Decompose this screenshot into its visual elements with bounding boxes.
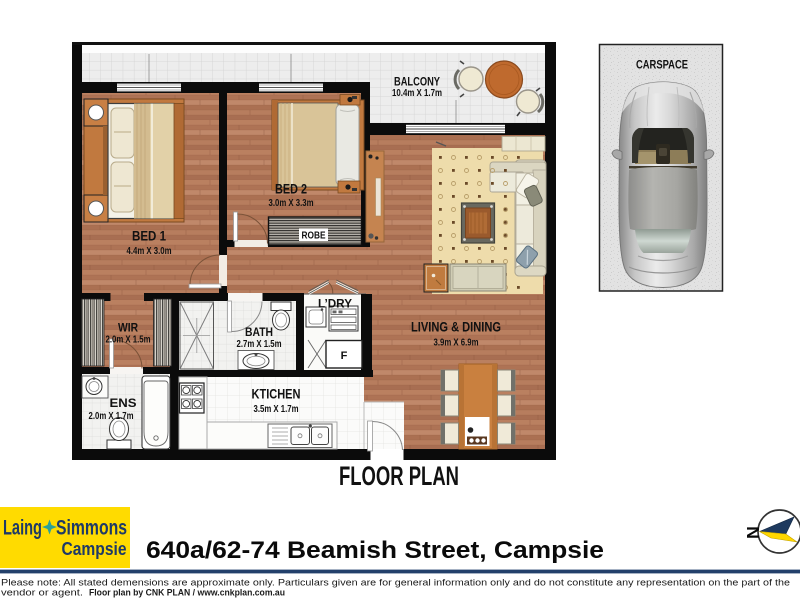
svg-text:ENS: ENS [110,396,137,410]
svg-text:10.4m X 1.7m: 10.4m X 1.7m [392,88,442,99]
svg-text:Laing: Laing [3,516,42,540]
svg-text:Please note: All stated demens: Please note: All stated demensions are a… [1,578,790,588]
svg-text:LIVING & DINING: LIVING & DINING [411,319,501,335]
svg-text:Campsie: Campsie [62,538,127,559]
svg-text:CARSPACE: CARSPACE [636,60,688,72]
svg-text:KTICHEN: KTICHEN [252,386,301,402]
svg-text:F: F [341,350,348,362]
svg-text:3.5m X 1.7m: 3.5m X 1.7m [254,403,299,415]
svg-text:2.0m X 1.5m: 2.0m X 1.5m [106,334,151,346]
svg-text:BALCONY: BALCONY [394,77,440,89]
svg-text:4.4m X 3.0m: 4.4m X 3.0m [127,245,172,257]
svg-text:2.7m X 1.5m: 2.7m X 1.5m [237,338,282,350]
svg-text:ROBE: ROBE [302,230,326,242]
svg-text:vendor or agent.: vendor or agent. [1,588,83,598]
svg-text:3.0m X 3.3m: 3.0m X 3.3m [269,197,314,209]
svg-text:640a/62-74 Beamish Street, Cam: 640a/62-74 Beamish Street, Campsie [146,537,604,564]
svg-text:Floor plan by CNK PLAN / www.c: Floor plan by CNK PLAN / www.cnkplan.com… [89,588,285,598]
svg-text:3.9m X 6.9m: 3.9m X 6.9m [434,337,479,349]
svg-text:2.0m X 1.7m: 2.0m X 1.7m [89,410,134,422]
svg-text:L’DRY: L’DRY [318,299,352,311]
svg-text:BED 2: BED 2 [275,181,307,197]
svg-text:FLOOR PLAN: FLOOR PLAN [339,461,459,491]
svg-text:Simmons: Simmons [56,516,127,540]
svg-text:BED 1: BED 1 [132,228,166,244]
svg-text:N: N [743,526,763,539]
